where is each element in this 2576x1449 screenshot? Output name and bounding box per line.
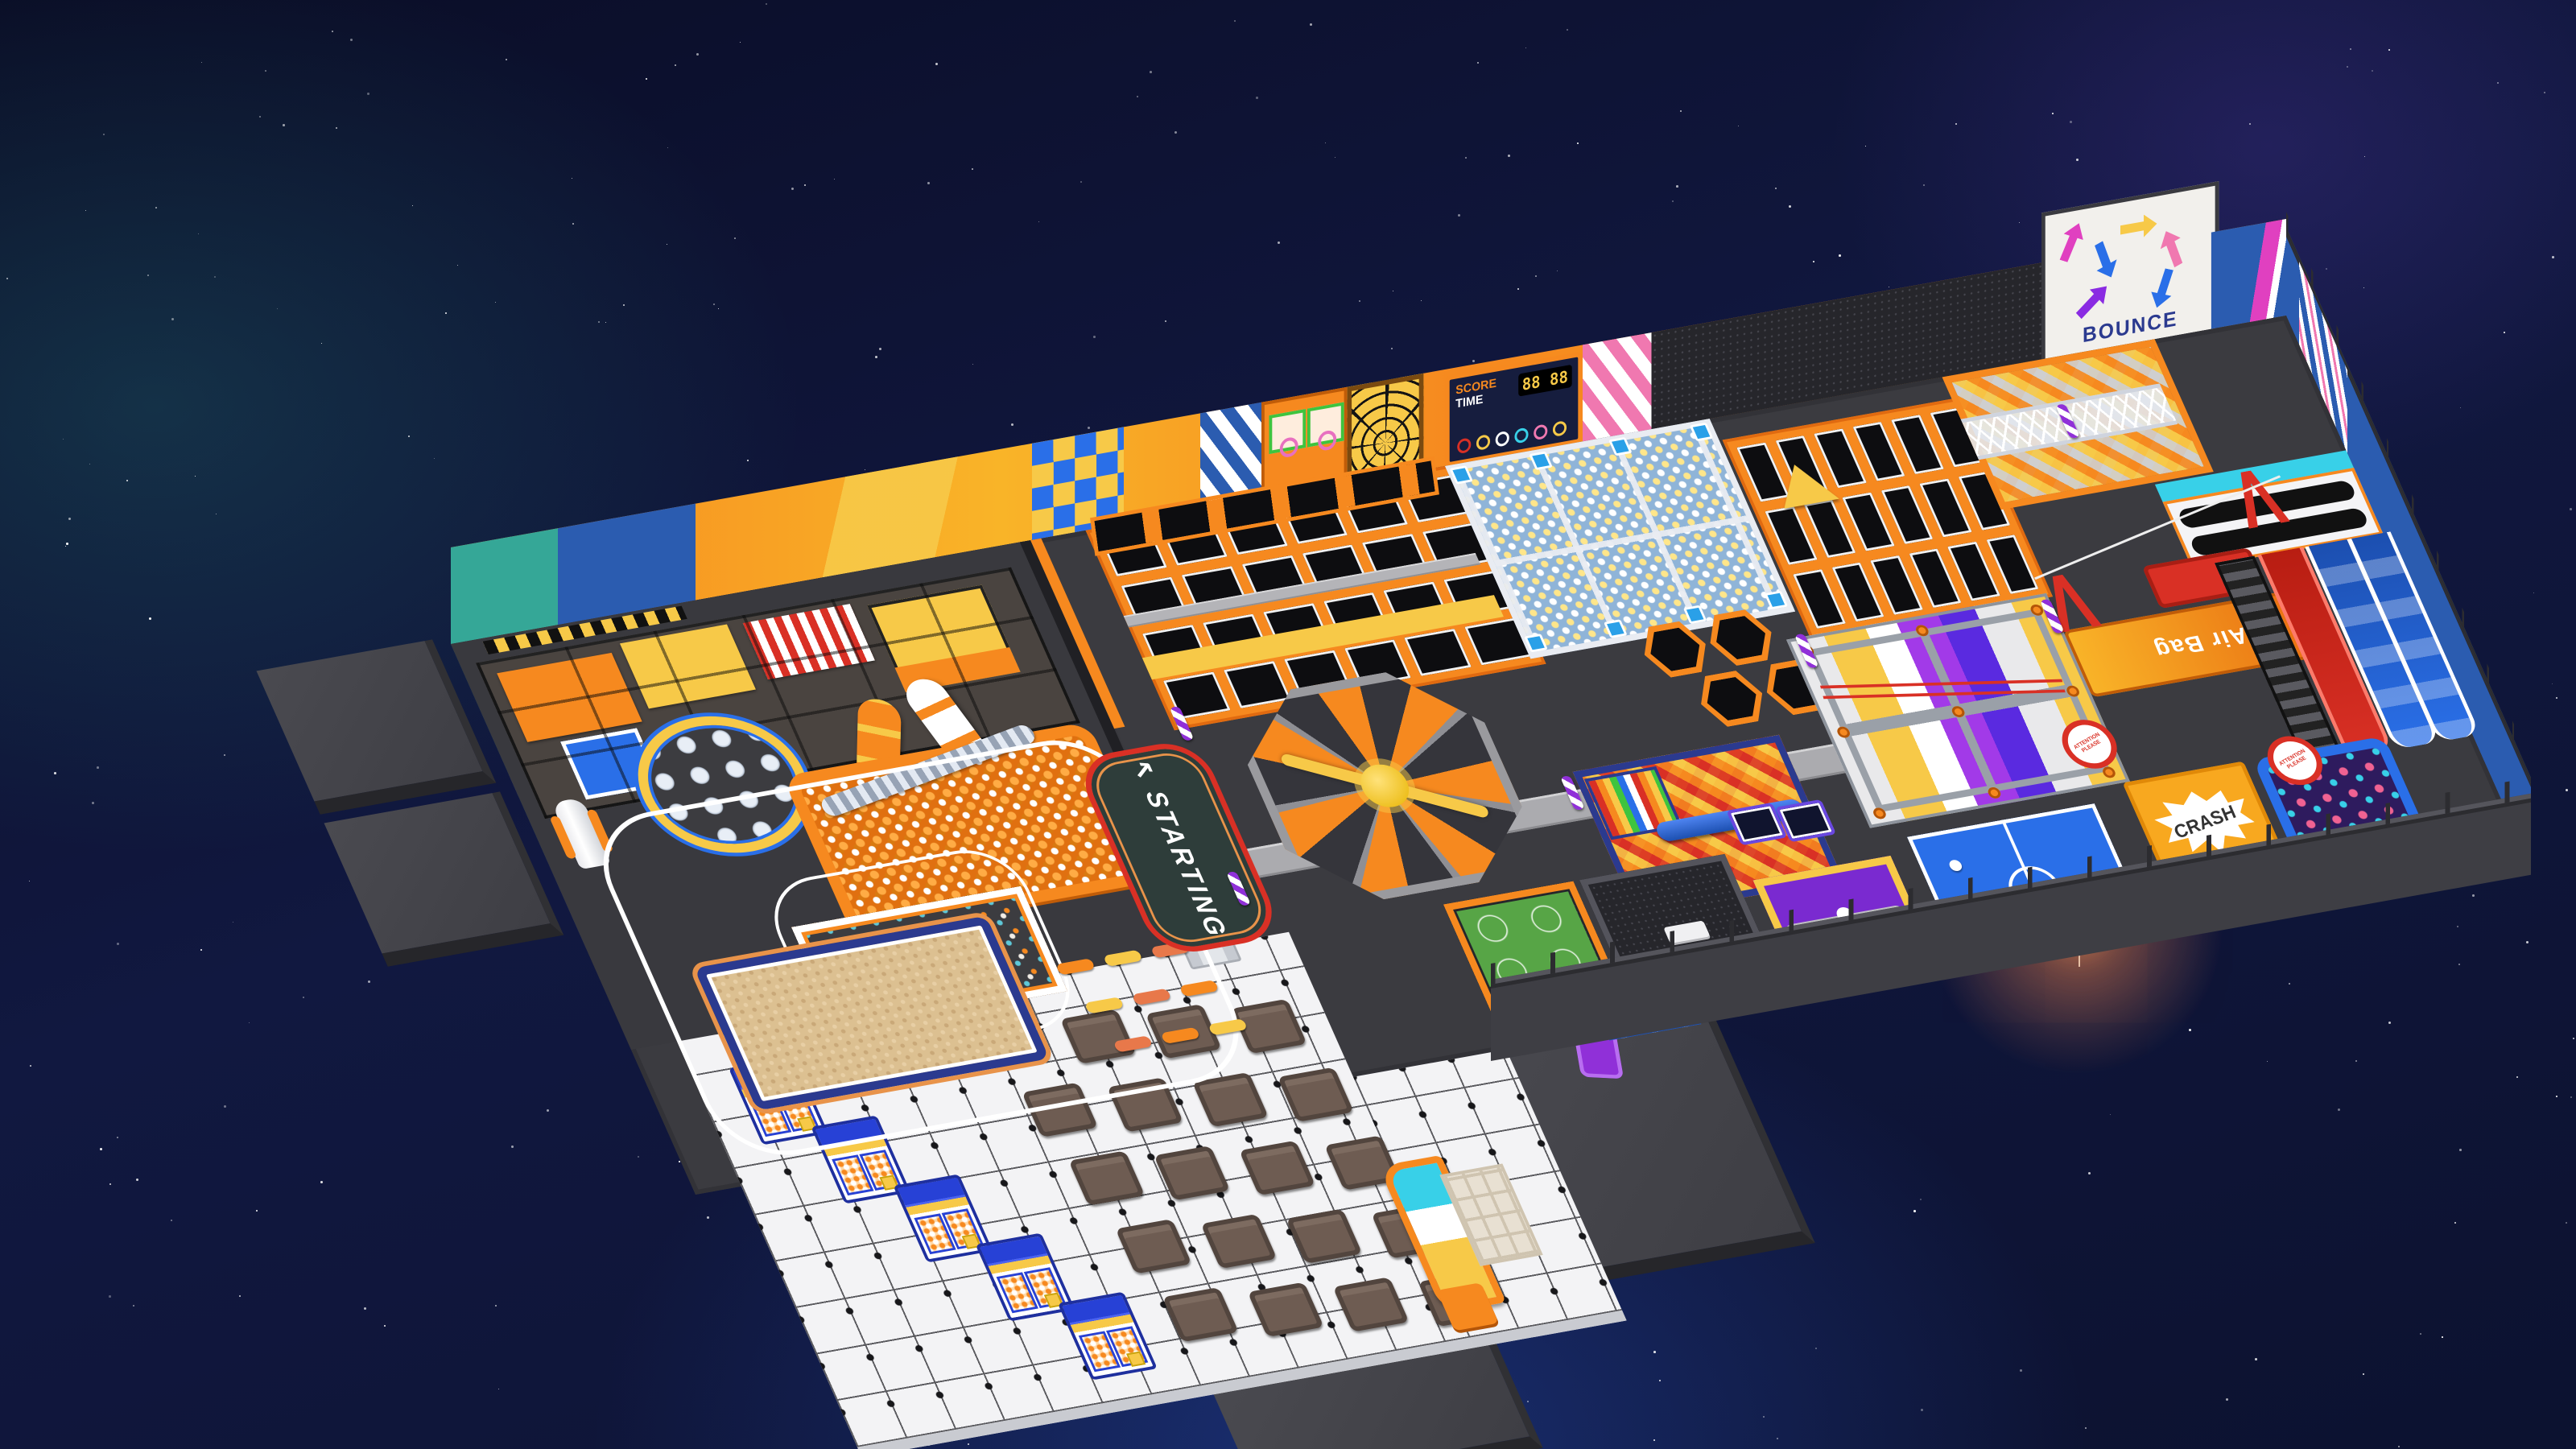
star — [766, 3, 767, 5]
star — [572, 178, 572, 179]
basketball-hoop — [1307, 402, 1344, 447]
star — [1676, 185, 1678, 188]
play-train — [867, 585, 1021, 693]
star — [265, 70, 266, 72]
ninja-column — [1449, 465, 1473, 485]
star — [1955, 123, 1957, 125]
star — [935, 63, 938, 65]
star — [1165, 320, 1166, 322]
star — [66, 543, 68, 545]
star — [85, 210, 86, 211]
star — [445, 312, 447, 314]
star — [1359, 300, 1360, 302]
star — [2497, 82, 2499, 84]
wall-right-tail — [2211, 219, 2286, 329]
trampoline-mat — [1405, 629, 1472, 676]
star — [224, 1105, 226, 1108]
star — [412, 205, 413, 206]
star — [1517, 288, 1519, 290]
star — [2570, 508, 2572, 510]
star — [89, 464, 90, 464]
star — [495, 302, 496, 303]
star — [109, 1295, 111, 1298]
ninja-column — [1604, 619, 1628, 638]
star — [256, 1210, 258, 1212]
star — [2363, 1373, 2364, 1375]
star — [367, 93, 369, 95]
star — [1923, 184, 1925, 186]
star — [547, 1109, 549, 1112]
star — [865, 469, 865, 470]
score-ring — [1476, 434, 1490, 451]
score-ring — [1534, 423, 1547, 440]
star — [126, 480, 128, 481]
star — [623, 304, 625, 306]
star — [1557, 270, 1558, 271]
star — [434, 458, 435, 459]
star — [6, 278, 8, 279]
star — [1310, 23, 1312, 26]
star — [320, 1181, 323, 1183]
star — [804, 184, 806, 186]
star — [740, 42, 741, 43]
starting-arrow: ↖ — [1124, 755, 1163, 784]
star — [30, 1065, 31, 1067]
star — [2556, 697, 2557, 699]
star — [1775, 188, 1777, 189]
arrow-hold-decal — [2156, 225, 2189, 270]
star — [350, 39, 353, 41]
star — [303, 997, 304, 998]
star — [97, 766, 99, 769]
star — [2420, 1333, 2421, 1335]
star — [133, 1305, 134, 1307]
star — [200, 949, 202, 951]
star — [2442, 1336, 2443, 1338]
star — [277, 308, 278, 309]
star — [2364, 156, 2365, 157]
hexagon-trampoline — [1690, 668, 1773, 730]
star — [875, 356, 877, 358]
star — [1577, 142, 1579, 144]
star — [1137, 96, 1138, 97]
play-deck — [620, 625, 756, 709]
star — [679, 1161, 680, 1162]
star — [2249, 123, 2251, 125]
arrow-hold-decal — [2054, 221, 2088, 264]
star — [675, 64, 676, 66]
star — [332, 31, 333, 32]
star — [506, 59, 507, 60]
star — [718, 308, 719, 309]
arrow-hold-decal — [2072, 279, 2114, 323]
star — [1038, 221, 1039, 222]
star — [1738, 126, 1739, 126]
star — [1889, 287, 1889, 287]
star — [1472, 360, 1475, 362]
star — [972, 364, 973, 365]
score-ring — [1457, 437, 1471, 454]
ninja-column — [1524, 634, 1548, 653]
star — [1093, 336, 1096, 338]
star — [605, 322, 606, 323]
striped-roof — [743, 604, 875, 679]
star — [1325, 142, 1326, 143]
scene-space-playground: SCORE TIME 88 88 BOUNCE — [0, 0, 2576, 1449]
star — [117, 1137, 118, 1138]
star — [29, 881, 30, 881]
scoreboard-digits: 88 88 — [1518, 365, 1572, 397]
star — [2460, 407, 2461, 408]
star — [1865, 146, 1866, 147]
star — [2504, 332, 2505, 333]
star — [171, 1220, 172, 1221]
star — [136, 1179, 138, 1181]
air-bag-label: Air Bag — [2146, 622, 2254, 663]
star — [109, 1183, 111, 1185]
star — [364, 1307, 366, 1310]
star — [63, 439, 64, 440]
star — [1278, 242, 1280, 244]
star — [283, 124, 285, 126]
star — [667, 244, 667, 245]
trampoline-mat — [1224, 661, 1291, 708]
star — [2350, 48, 2351, 50]
star — [2544, 92, 2545, 93]
star — [1680, 110, 1682, 112]
star — [239, 1295, 241, 1297]
star — [198, 233, 199, 234]
star — [1777, 1438, 1778, 1439]
ninja-column — [1690, 423, 1714, 442]
star — [879, 348, 881, 350]
star — [791, 188, 794, 190]
star — [667, 147, 668, 148]
star — [2372, 70, 2373, 72]
star — [155, 207, 157, 208]
star — [65, 546, 66, 547]
star — [927, 182, 930, 184]
star — [1465, 157, 1467, 159]
score-ring — [1553, 420, 1567, 437]
star — [2052, 113, 2054, 114]
star — [598, 321, 600, 323]
wall-stripes-candy — [1583, 332, 1652, 441]
star — [2255, 1358, 2257, 1360]
star — [1393, 291, 1393, 291]
star — [498, 1389, 499, 1389]
star — [259, 116, 261, 118]
star — [2076, 159, 2079, 161]
star — [1421, 300, 1422, 301]
star — [1789, 205, 1791, 208]
star — [336, 127, 337, 129]
star — [2363, 287, 2364, 288]
star — [2566, 789, 2568, 791]
ropes-post — [2101, 766, 2117, 778]
arrow-hold-decal — [2089, 237, 2122, 283]
arrow-hold-decal — [2147, 267, 2180, 310]
star — [2533, 592, 2534, 593]
star — [1921, 1409, 1923, 1411]
star — [1458, 214, 1460, 217]
star — [713, 303, 715, 305]
star — [638, 1156, 639, 1158]
arrow-hold-decal — [2120, 213, 2157, 242]
star — [696, 53, 699, 56]
star — [1839, 254, 1841, 257]
star — [1813, 261, 1814, 262]
hexagon-trampoline — [1699, 607, 1783, 669]
star — [216, 514, 217, 514]
star — [92, 802, 94, 804]
star — [368, 980, 370, 983]
star — [734, 237, 736, 239]
star — [2326, 268, 2327, 270]
star — [149, 617, 151, 620]
star — [100, 1148, 102, 1150]
star — [972, 168, 973, 170]
star — [1525, 47, 1526, 48]
star — [1088, 427, 1090, 429]
star — [214, 276, 216, 278]
score-ring — [1496, 431, 1509, 448]
star — [2085, 1427, 2087, 1429]
ninja-column — [1608, 437, 1633, 456]
basketball-hoop — [1269, 409, 1307, 454]
star — [1234, 20, 1236, 22]
star — [457, 265, 458, 266]
star — [384, 1325, 386, 1327]
star — [511, 1146, 514, 1148]
star — [1477, 62, 1479, 64]
score-ring — [1514, 427, 1528, 444]
play-deck — [497, 653, 642, 742]
star — [2552, 683, 2553, 684]
star — [103, 134, 105, 135]
star — [1508, 155, 1510, 157]
star — [747, 460, 749, 461]
star — [1535, 275, 1537, 277]
star — [224, 754, 225, 756]
star — [201, 62, 202, 63]
star — [68, 518, 71, 520]
star — [1672, 200, 1674, 202]
star — [117, 943, 119, 945]
star — [1567, 29, 1568, 31]
star — [1080, 181, 1082, 183]
star — [2226, 1398, 2228, 1401]
star — [1174, 131, 1177, 134]
star — [646, 78, 647, 80]
star — [2019, 222, 2020, 223]
star — [2552, 256, 2554, 258]
ninja-column — [1529, 452, 1553, 471]
star — [1011, 423, 1013, 426]
star — [1256, 97, 1258, 99]
star — [147, 275, 149, 276]
star — [233, 922, 233, 923]
star — [321, 343, 322, 344]
star — [2070, 121, 2072, 123]
star — [495, 1305, 497, 1307]
star — [1391, 348, 1393, 349]
star — [2398, 1446, 2400, 1447]
star — [408, 436, 410, 437]
star — [572, 223, 574, 225]
star — [834, 179, 835, 180]
star — [195, 476, 196, 477]
star — [1150, 71, 1152, 73]
starting-label: STARTING — [1139, 788, 1233, 940]
star — [54, 772, 56, 774]
star — [171, 318, 174, 320]
star — [2388, 49, 2390, 51]
star — [1335, 157, 1335, 158]
star — [2347, 66, 2348, 68]
star — [249, 1022, 250, 1023]
